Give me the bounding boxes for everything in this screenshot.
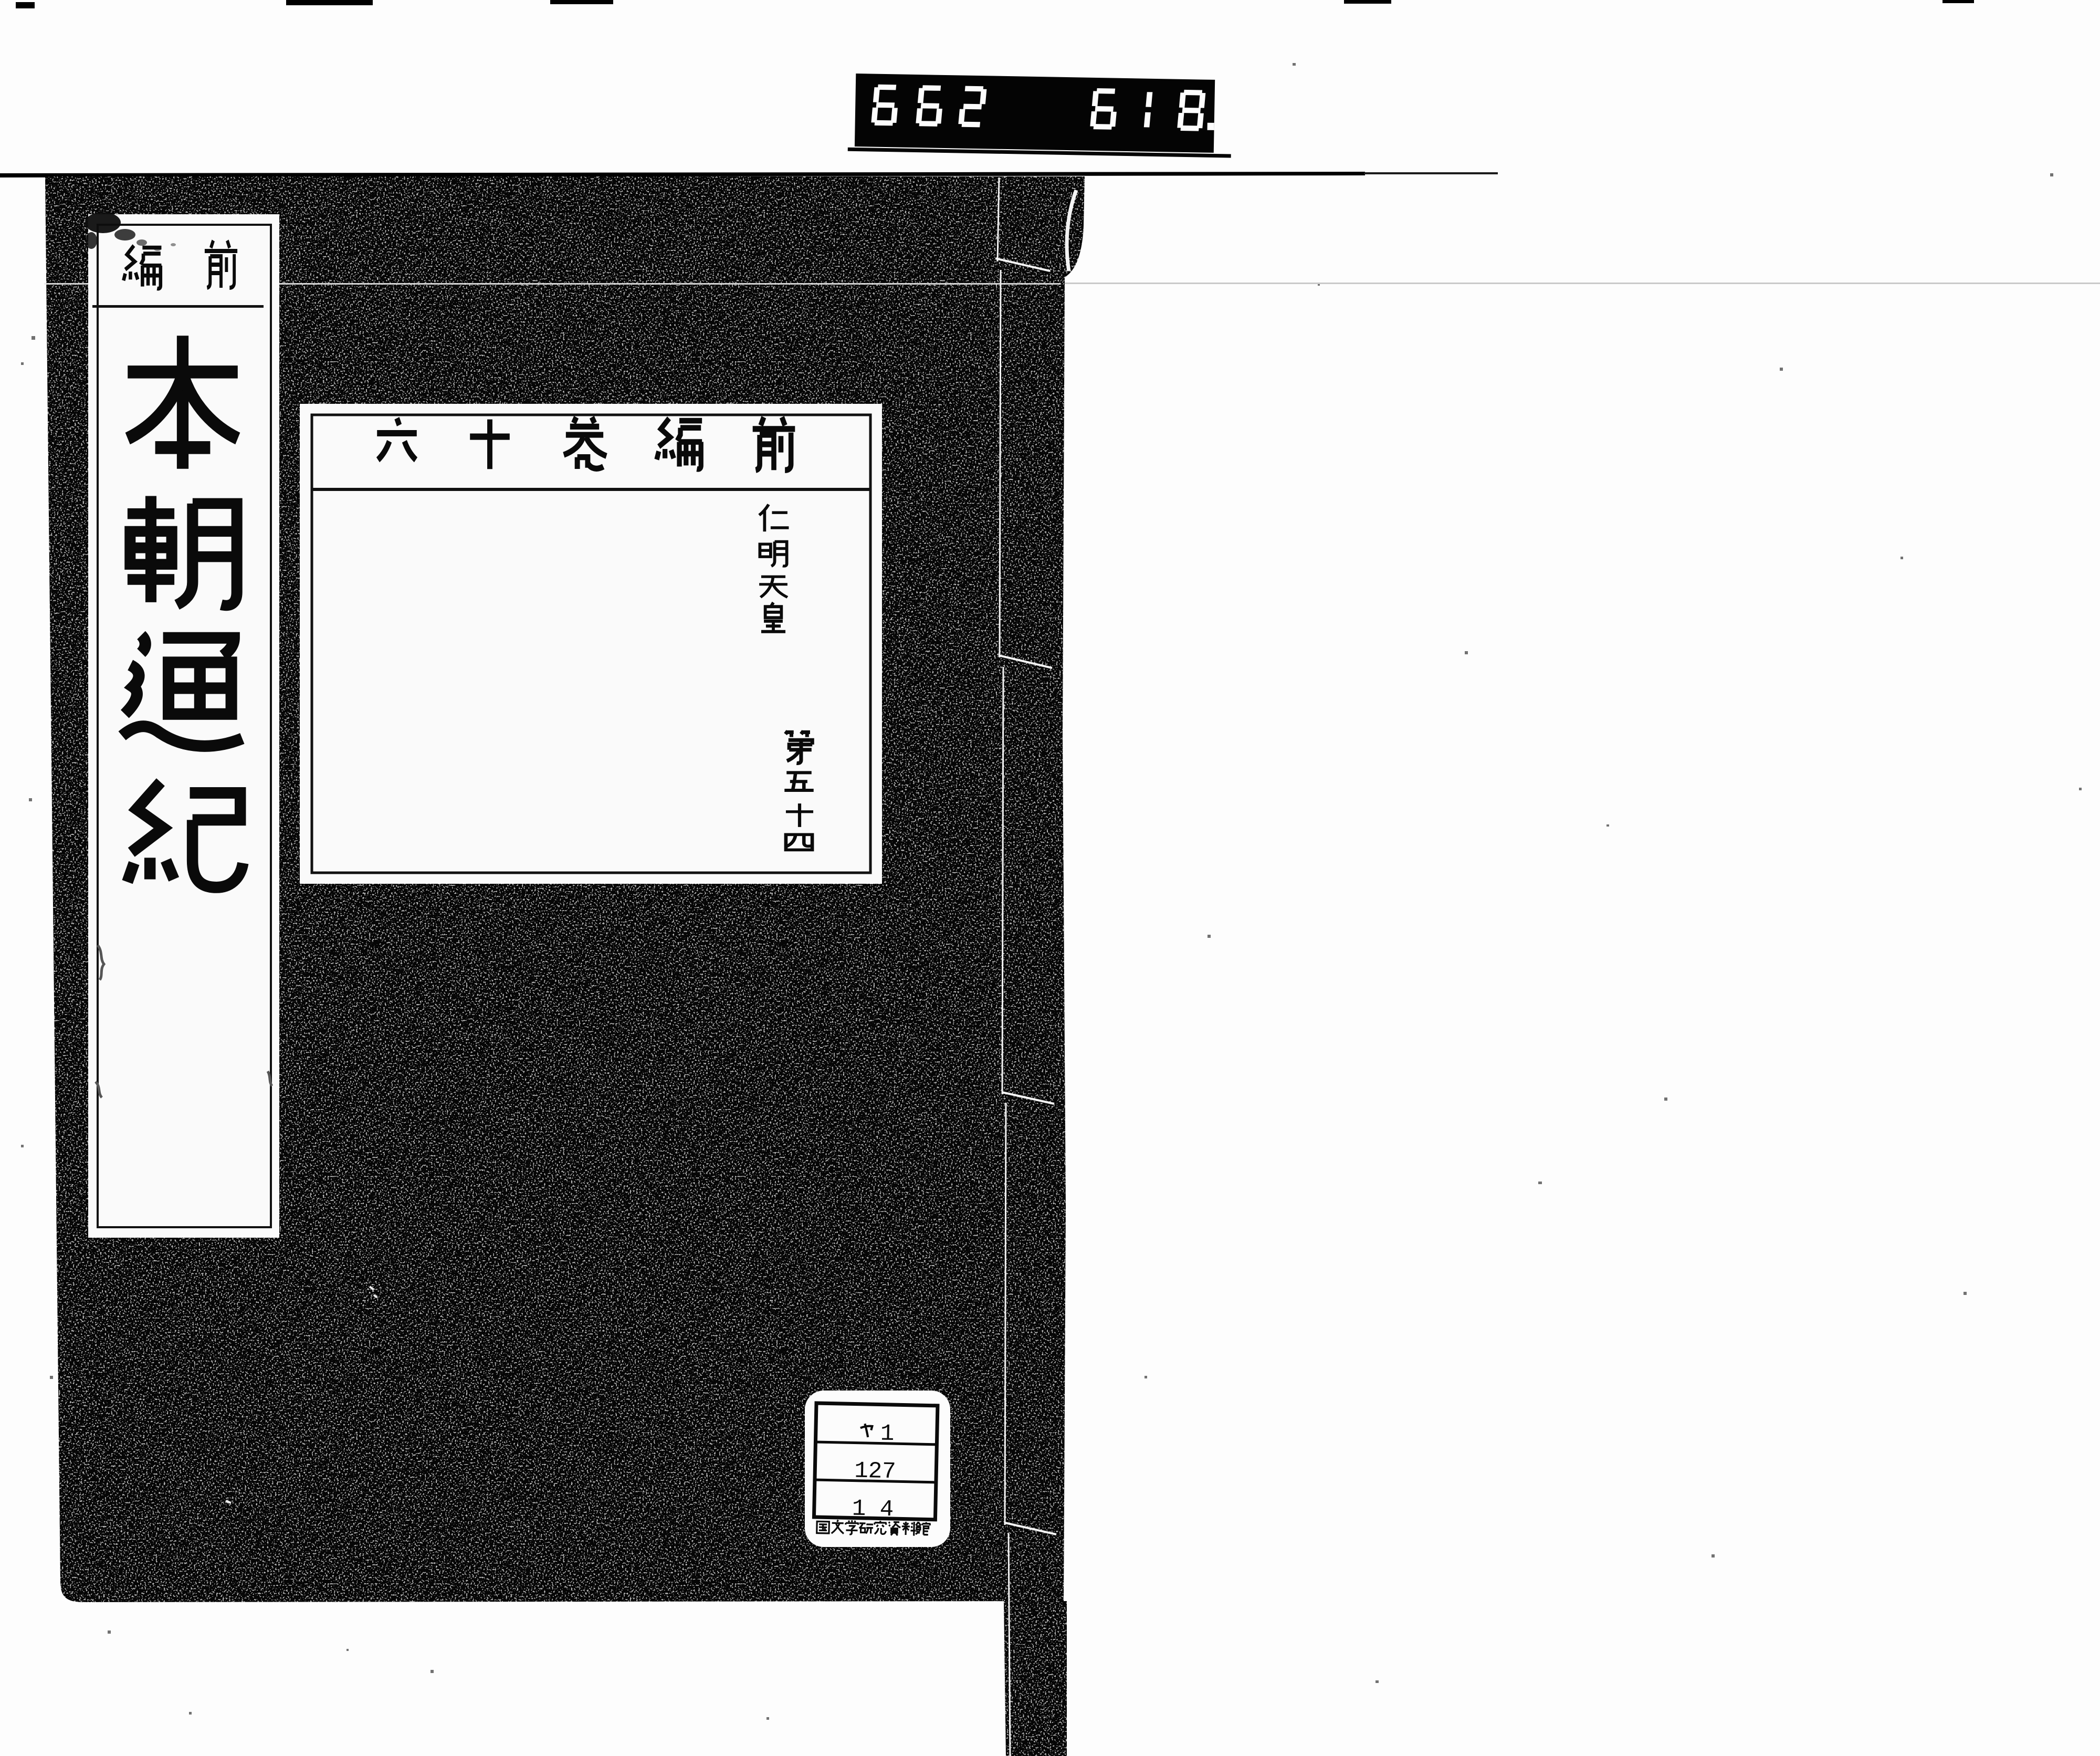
svg-text:4: 4 — [879, 1497, 894, 1523]
svg-text:1: 1 — [852, 1496, 866, 1522]
svg-text:127: 127 — [854, 1458, 896, 1486]
svg-text:1: 1 — [880, 1421, 894, 1448]
